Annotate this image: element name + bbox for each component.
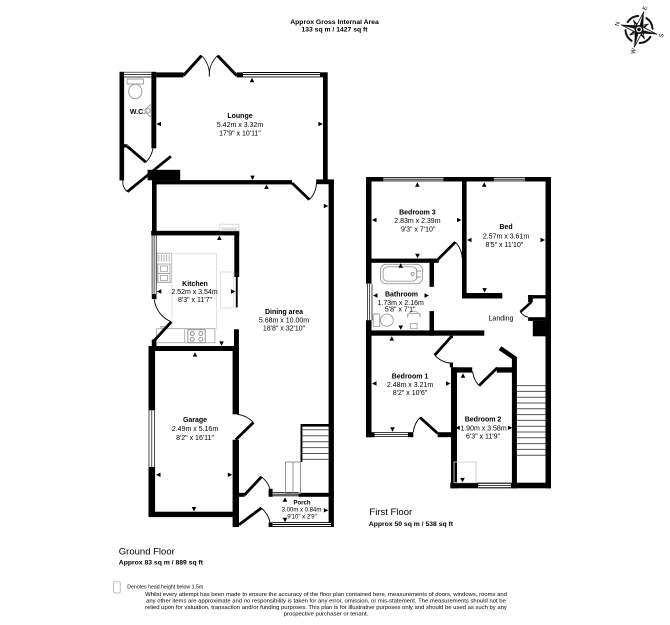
svg-text:Whilst every attempt has been: Whilst every attempt has been made to en…	[145, 592, 507, 598]
svg-text:6'3" x 11'9": 6'3" x 11'9"	[466, 434, 500, 441]
svg-text:3.00m x 0.84m: 3.00m x 0.84m	[282, 508, 322, 514]
svg-text:Porch: Porch	[293, 500, 310, 506]
svg-text:Denotes head height below 1.5m: Denotes head height below 1.5m	[127, 585, 203, 591]
svg-text:1.90m x 3.58m: 1.90m x 3.58m	[460, 425, 506, 432]
svg-text:2.52m x 3.54m: 2.52m x 3.54m	[171, 289, 217, 296]
svg-text:Approx Gross Internal Area: Approx Gross Internal Area	[290, 19, 379, 26]
svg-text:Garage: Garage	[183, 417, 207, 424]
svg-text:Approx 83 sq m / 889 sq ft: Approx 83 sq m / 889 sq ft	[119, 560, 204, 567]
svg-text:any other items are approximat: any other items are approximate and no r…	[146, 599, 506, 605]
svg-text:17'9" x 10'11": 17'9" x 10'11"	[219, 130, 261, 137]
svg-text:5.68m x 10.00m: 5.68m x 10.00m	[259, 317, 309, 324]
svg-text:W.C.: W.C.	[130, 109, 145, 116]
svg-text:18'8" x 32'10": 18'8" x 32'10"	[263, 326, 306, 333]
svg-text:9'3" x 7'10": 9'3" x 7'10"	[401, 227, 436, 234]
svg-text:Approx 50 sq m / 538 sq ft: Approx 50 sq m / 538 sq ft	[369, 521, 454, 528]
svg-text:Landing: Landing	[489, 316, 514, 323]
svg-text:133 sq m / 1427 sq ft: 133 sq m / 1427 sq ft	[301, 26, 368, 33]
svg-text:9'10" x 2'9": 9'10" x 2'9"	[287, 515, 317, 521]
svg-text:Bedroom 3: Bedroom 3	[399, 209, 436, 216]
svg-text:prospective purchaser or tenan: prospective purchaser or tenant.	[284, 612, 369, 618]
svg-text:Bedroom 2: Bedroom 2	[465, 417, 502, 424]
svg-text:Bathroom: Bathroom	[385, 291, 418, 298]
svg-text:2.48m x 3.21m: 2.48m x 3.21m	[387, 382, 433, 389]
svg-text:2.57m x 3.61m: 2.57m x 3.61m	[483, 234, 529, 241]
svg-text:8'2" x 16'11": 8'2" x 16'11"	[176, 435, 214, 442]
svg-text:Bedroom 1: Bedroom 1	[392, 374, 429, 381]
svg-text:8'3" x 11'7": 8'3" x 11'7"	[178, 297, 212, 304]
svg-text:Bed: Bed	[499, 224, 512, 231]
svg-text:8'5" x 11'10": 8'5" x 11'10"	[485, 242, 523, 249]
svg-text:Dining area: Dining area	[265, 309, 303, 316]
svg-text:First Floor: First Floor	[369, 507, 412, 518]
svg-text:Kitchen: Kitchen	[182, 281, 208, 288]
svg-text:Ground Floor: Ground Floor	[119, 547, 175, 558]
svg-text:relied upon for valuation, tra: relied upon for valuation, transaction a…	[145, 605, 507, 611]
svg-text:2.83m x 2.39m: 2.83m x 2.39m	[394, 218, 440, 225]
svg-text:8'2" x 10'6": 8'2" x 10'6"	[393, 390, 428, 397]
svg-text:5.42m x 3.32m: 5.42m x 3.32m	[217, 122, 263, 129]
svg-text:5'8" x 7'1": 5'8" x 7'1"	[385, 307, 416, 314]
svg-text:Lounge: Lounge	[227, 113, 252, 120]
svg-text:2.49m x 5.16m: 2.49m x 5.16m	[172, 426, 218, 433]
